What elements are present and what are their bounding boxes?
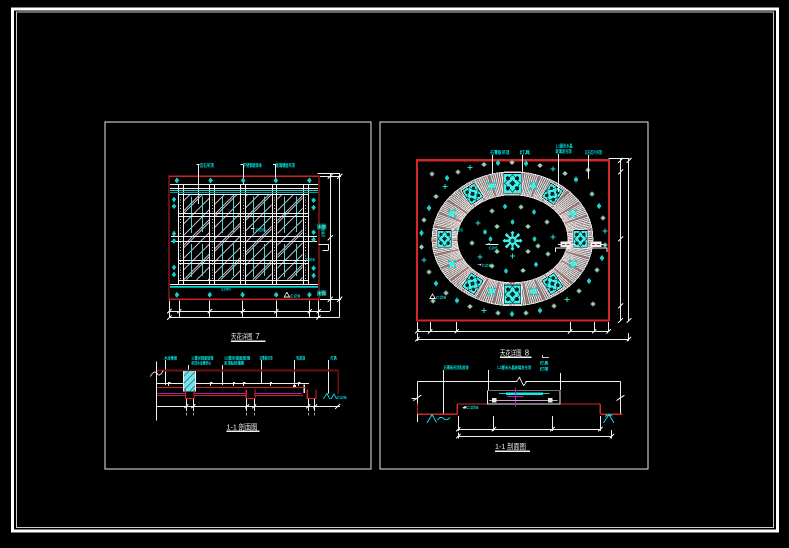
svg-text:1200: 1200 [221, 286, 232, 291]
svg-text:石膏板吊顶乳胶漆: 石膏板吊顶乳胶漆 [443, 364, 469, 371]
svg-text:吊顶木龙骨防火: 吊顶木龙骨防火 [191, 359, 212, 366]
svg-text:C∅5: C∅5 [255, 228, 266, 233]
svg-text:天花详图: 天花详图 [231, 332, 253, 341]
svg-text:乳胶漆: 乳胶漆 [296, 354, 306, 361]
svg-text:C∅9: C∅9 [436, 295, 447, 300]
svg-text:云石吊顶: 云石吊顶 [200, 162, 214, 169]
svg-text:玻璃发光顶: 玻璃发光顶 [556, 148, 572, 155]
svg-text:1-1: 1-1 [227, 422, 237, 431]
svg-text:灯带: 灯带 [540, 366, 549, 373]
svg-text:2850: 2850 [321, 225, 326, 237]
svg-text:C∅5: C∅5 [337, 395, 348, 400]
svg-text:云石灯片吊顶: 云石灯片吊顶 [585, 149, 602, 156]
svg-text:石膏板吊顶: 石膏板吊顶 [259, 354, 273, 361]
svg-text:玻璃镜面吊顶: 玻璃镜面吊顶 [276, 162, 295, 169]
svg-text:C∅5: C∅5 [306, 257, 316, 262]
svg-text:C∅9: C∅9 [290, 293, 301, 298]
svg-text:剖面图: 剖面图 [239, 422, 258, 431]
svg-text:C∅5: C∅5 [489, 245, 499, 250]
svg-text:1.2厘米水晶玻璃发光顶: 1.2厘米水晶玻璃发光顶 [497, 364, 532, 371]
svg-text:灯具: 灯具 [330, 354, 337, 361]
svg-text:天花详图: 天花详图 [500, 348, 522, 357]
svg-text:7: 7 [255, 332, 259, 341]
svg-text:C∅5: C∅5 [455, 227, 464, 232]
svg-text:剖面图: 剖面图 [507, 442, 526, 451]
svg-text:灯具: 灯具 [540, 360, 549, 367]
svg-text:吊顶贴防爆膜: 吊顶贴防爆膜 [224, 359, 245, 366]
svg-text:8: 8 [525, 348, 529, 357]
svg-text:1-1: 1-1 [495, 442, 505, 451]
svg-text:灯具: 灯具 [520, 149, 531, 156]
svg-text:C∅5: C∅5 [466, 405, 479, 410]
svg-text:石膏板吊顶: 石膏板吊顶 [490, 149, 510, 156]
svg-text:C∅5: C∅5 [482, 263, 492, 268]
svg-text:不锈钢装饰条: 不锈钢装饰条 [243, 162, 262, 169]
svg-text:木饰: 木饰 [316, 290, 326, 297]
